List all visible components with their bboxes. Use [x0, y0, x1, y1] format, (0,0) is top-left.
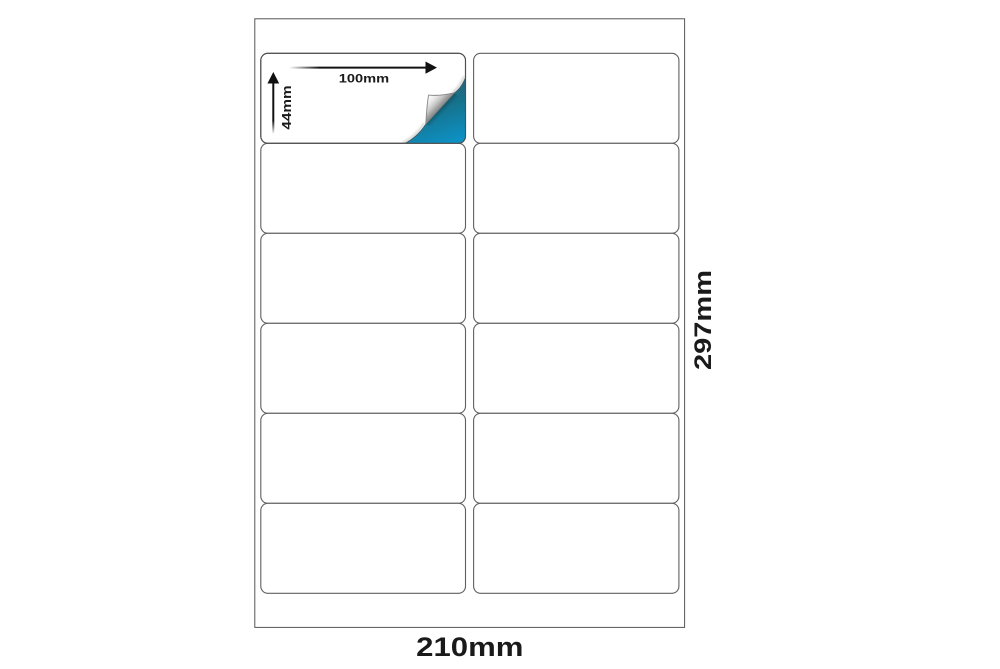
svg-text:100mm: 100mm	[339, 71, 389, 85]
svg-text:297mm: 297mm	[689, 270, 716, 370]
svg-text:210mm: 210mm	[416, 633, 523, 662]
svg-text:44mm: 44mm	[280, 85, 295, 129]
